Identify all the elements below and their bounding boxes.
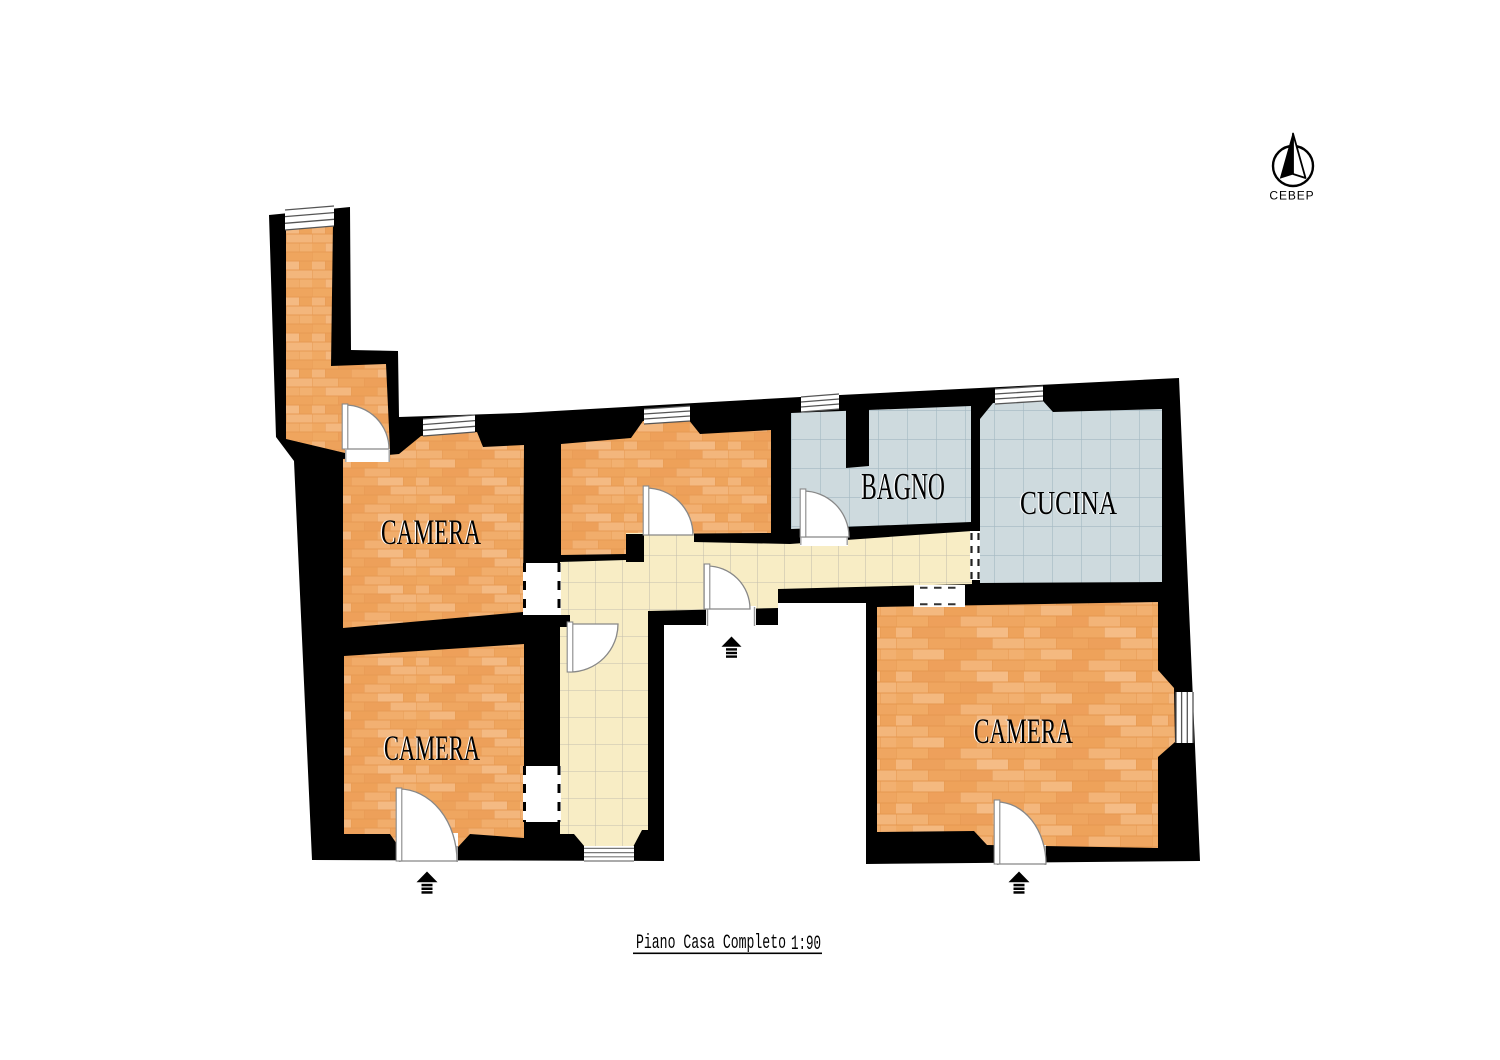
svg-text:CUCINA: CUCINA	[1020, 485, 1117, 522]
svg-text:CAMERA: CAMERA	[381, 512, 481, 552]
svg-text:СЕВЕР: СЕВЕР	[1269, 189, 1314, 203]
svg-text:CAMERA: CAMERA	[974, 711, 1073, 751]
svg-text:BAGNO: BAGNO	[861, 466, 945, 508]
svg-text:CAMERA: CAMERA	[384, 728, 480, 768]
svg-text:Piano Casa Completo: Piano Casa Completo	[636, 932, 786, 955]
